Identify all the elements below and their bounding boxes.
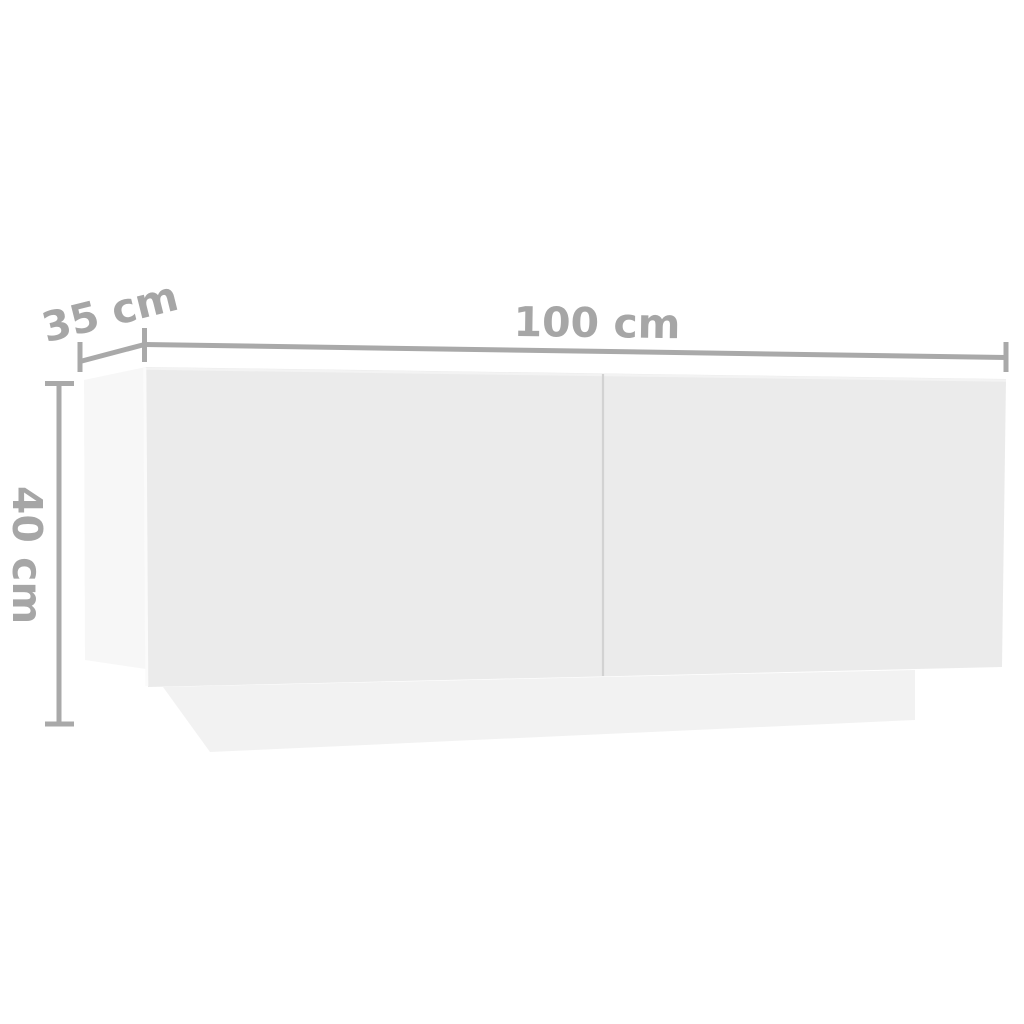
cabinet-front-left-edge-highlight xyxy=(145,368,147,686)
depth-dimension-line xyxy=(80,345,145,362)
cabinet-dimension-diagram xyxy=(0,0,1024,1024)
cabinet-side-panel xyxy=(84,367,146,669)
diagram-canvas: 100 cm 35 cm 40 cm xyxy=(0,0,1024,1024)
cabinet-front-face xyxy=(146,367,1006,687)
width-dimension-label: 100 cm xyxy=(513,298,681,348)
height-dimension-label: 40 cm xyxy=(3,486,51,624)
